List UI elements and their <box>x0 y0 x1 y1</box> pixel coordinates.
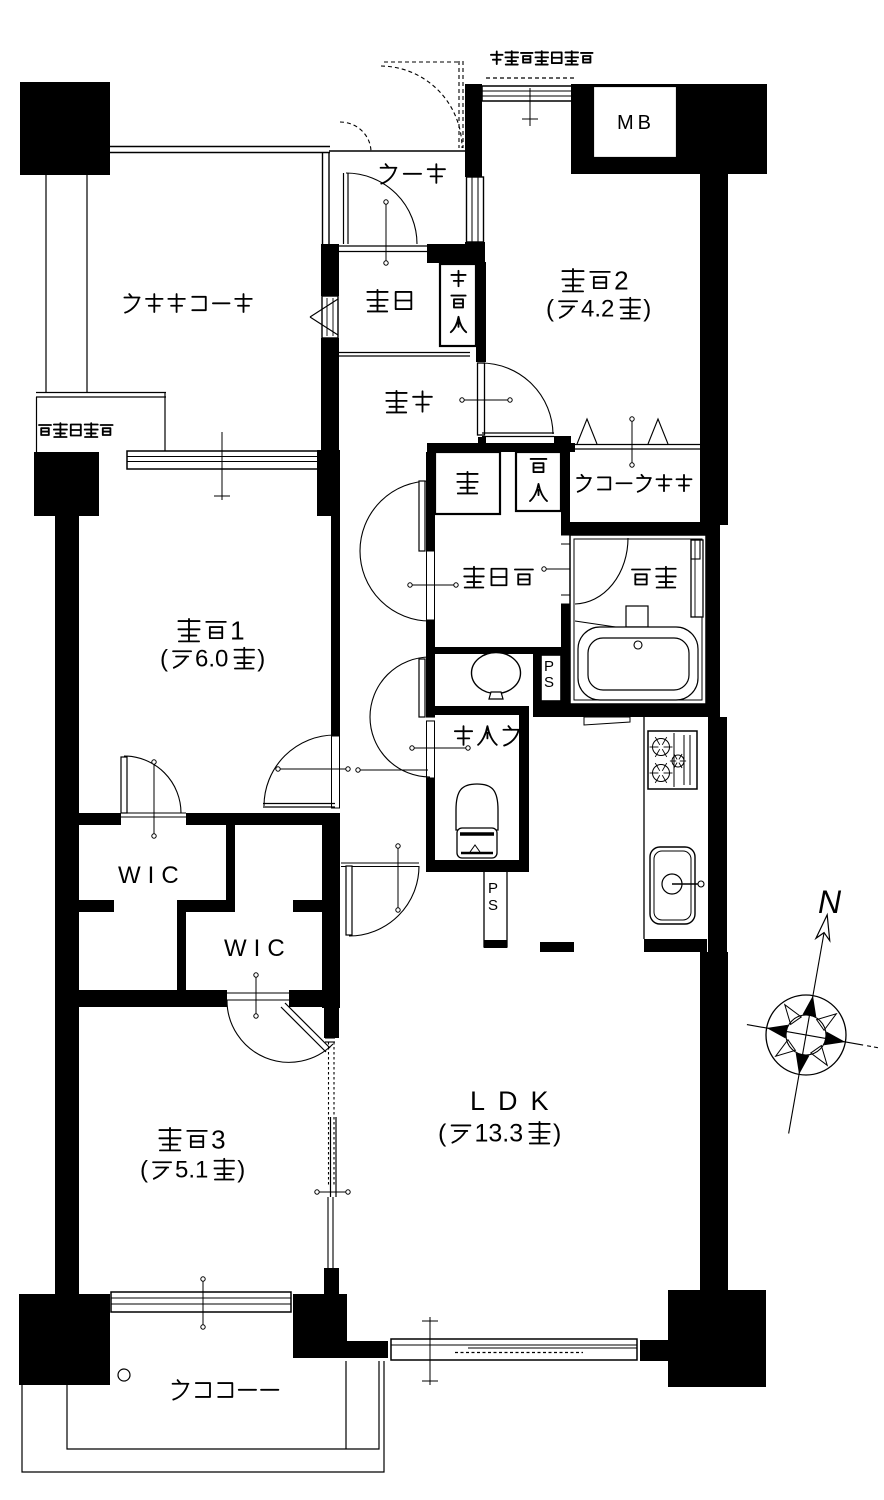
svg-text:MB: MB <box>617 112 655 134</box>
svg-text:(: ( <box>546 296 554 323</box>
svg-text:3: 3 <box>211 1124 225 1154</box>
svg-text:WIC: WIC <box>118 862 186 889</box>
svg-text:(: ( <box>140 1157 148 1184</box>
svg-text:P: P <box>544 658 554 675</box>
svg-text:): ) <box>257 646 265 673</box>
svg-text:(: ( <box>438 1120 447 1148</box>
svg-text:S: S <box>488 897 498 914</box>
svg-text:P: P <box>488 880 498 897</box>
svg-text:): ) <box>553 1120 561 1148</box>
svg-text:4.2: 4.2 <box>581 296 614 323</box>
svg-text:): ) <box>643 296 651 323</box>
svg-text:6.0: 6.0 <box>195 646 228 673</box>
svg-text:5.1: 5.1 <box>175 1157 208 1184</box>
svg-text:N: N <box>818 884 842 920</box>
svg-text:13.3: 13.3 <box>475 1120 524 1148</box>
svg-text:): ) <box>237 1157 245 1184</box>
svg-text:2: 2 <box>614 265 628 295</box>
svg-text:1: 1 <box>230 615 244 645</box>
svg-text:(: ( <box>160 646 168 673</box>
svg-text:S: S <box>544 674 554 691</box>
svg-text:LDK: LDK <box>470 1086 562 1116</box>
svg-text:WIC: WIC <box>224 935 292 962</box>
